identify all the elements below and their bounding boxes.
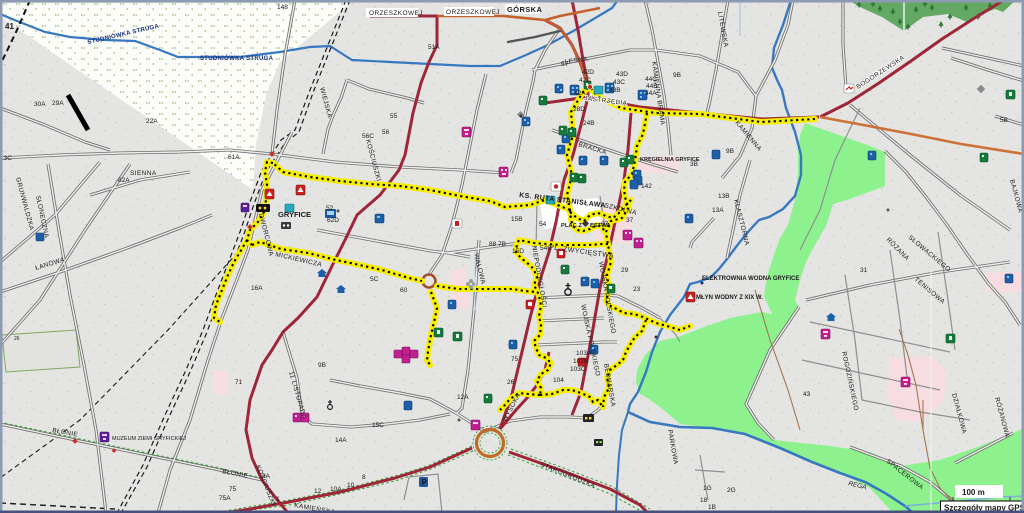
svg-text:82A: 82A [118,177,130,184]
svg-text:60: 60 [400,287,408,294]
svg-text:15C: 15C [372,422,384,429]
svg-text:42C: 42C [579,77,591,84]
svg-text:SIENNA: SIENNA [130,170,157,177]
svg-text:23: 23 [633,286,641,293]
svg-text:26: 26 [14,336,20,342]
svg-text:9B: 9B [726,148,734,155]
svg-text:37: 37 [626,217,634,224]
svg-text:56: 56 [382,129,390,136]
svg-text:44C: 44C [645,76,657,83]
svg-text:MŁYN WODNY Z XIX W.: MŁYN WODNY Z XIX W. [696,295,763,301]
svg-text:P: P [422,478,428,487]
svg-text:57: 57 [561,61,569,68]
svg-text:148: 148 [277,4,288,11]
svg-text:43D: 43D [616,71,628,78]
svg-text:103A: 103A [576,350,592,357]
svg-text:43C: 43C [613,79,625,86]
svg-text:62D: 62D [327,217,339,224]
svg-text:52: 52 [326,205,334,212]
svg-text:75: 75 [229,486,237,493]
svg-text:PLAC Z: PLAC Z [561,223,582,229]
svg-text:30A: 30A [34,101,46,108]
svg-text:9B: 9B [673,72,681,79]
svg-text:1: 1 [276,496,280,503]
svg-text:75A: 75A [219,495,231,502]
svg-text:STUDNIÓWKA STRUGA: STUDNIÓWKA STRUGA [200,54,274,62]
svg-text:16A: 16A [251,285,263,292]
svg-text:104: 104 [553,377,564,384]
svg-text:10: 10 [347,482,355,489]
svg-text:55: 55 [390,113,398,120]
svg-text:103C: 103C [570,366,586,373]
svg-text:13B: 13B [718,193,730,200]
svg-text:43B: 43B [609,87,621,94]
svg-text:54C: 54C [540,245,552,252]
svg-text:1B: 1B [708,504,716,511]
svg-text:1G: 1G [703,485,712,492]
svg-text:GRYFICE: GRYFICE [278,210,311,219]
svg-text:MUZEUM ZIEMI GRYFICKIEJ: MUZEUM ZIEMI GRYFICKIEJ [112,436,186,442]
svg-text:43: 43 [803,391,811,398]
svg-text:5C: 5C [370,276,379,283]
svg-text:31: 31 [860,267,868,274]
svg-text:56C: 56C [362,133,374,140]
svg-text:14A: 14A [335,437,347,444]
svg-text:5B: 5B [1000,117,1008,124]
svg-text:42A: 42A [574,90,586,97]
svg-text:102B: 102B [573,358,588,365]
svg-text:54: 54 [539,221,547,228]
svg-text:15D: 15D [512,248,524,255]
svg-text:15B: 15B [511,216,523,223]
svg-text:ORZESZKOWEJ: ORZESZKOWEJ [446,9,500,16]
svg-text:3B: 3B [690,161,698,168]
svg-text:44B: 44B [646,83,658,90]
svg-text:75: 75 [511,356,519,363]
svg-text:61A: 61A [228,154,240,161]
svg-text:2A: 2A [262,473,271,480]
svg-text:100 m: 100 m [962,488,985,497]
svg-text:37: 37 [601,221,609,228]
svg-text:ELEKTROWNIA WODNA GRYFICE: ELEKTROWNIA WODNA GRYFICE [702,276,799,282]
svg-text:GÓRSKA: GÓRSKA [507,5,543,14]
svg-text:29A: 29A [52,100,64,107]
svg-text:10A: 10A [330,486,342,493]
svg-text:28D: 28D [573,106,585,113]
svg-text:12A: 12A [457,394,469,401]
svg-text:42D: 42D [582,69,594,76]
svg-text:12: 12 [314,488,322,495]
svg-text:26: 26 [507,379,515,386]
svg-text:71: 71 [235,379,243,386]
svg-text:13A: 13A [712,207,724,214]
svg-text:44A: 44A [645,90,657,97]
svg-text:8: 8 [362,474,366,481]
svg-text:9B: 9B [318,362,326,369]
svg-text:2G: 2G [727,487,736,494]
svg-text:29: 29 [621,267,629,274]
svg-text:51A: 51A [428,44,440,51]
svg-text:88 7B: 88 7B [489,241,506,248]
svg-text:41: 41 [5,22,14,31]
svg-text:ORZESZKOWEJ: ORZESZKOWEJ [369,10,423,17]
svg-text:142: 142 [641,183,652,190]
svg-text:24B: 24B [583,120,595,127]
svg-text:18: 18 [700,497,708,504]
svg-text:22A: 22A [146,118,158,125]
